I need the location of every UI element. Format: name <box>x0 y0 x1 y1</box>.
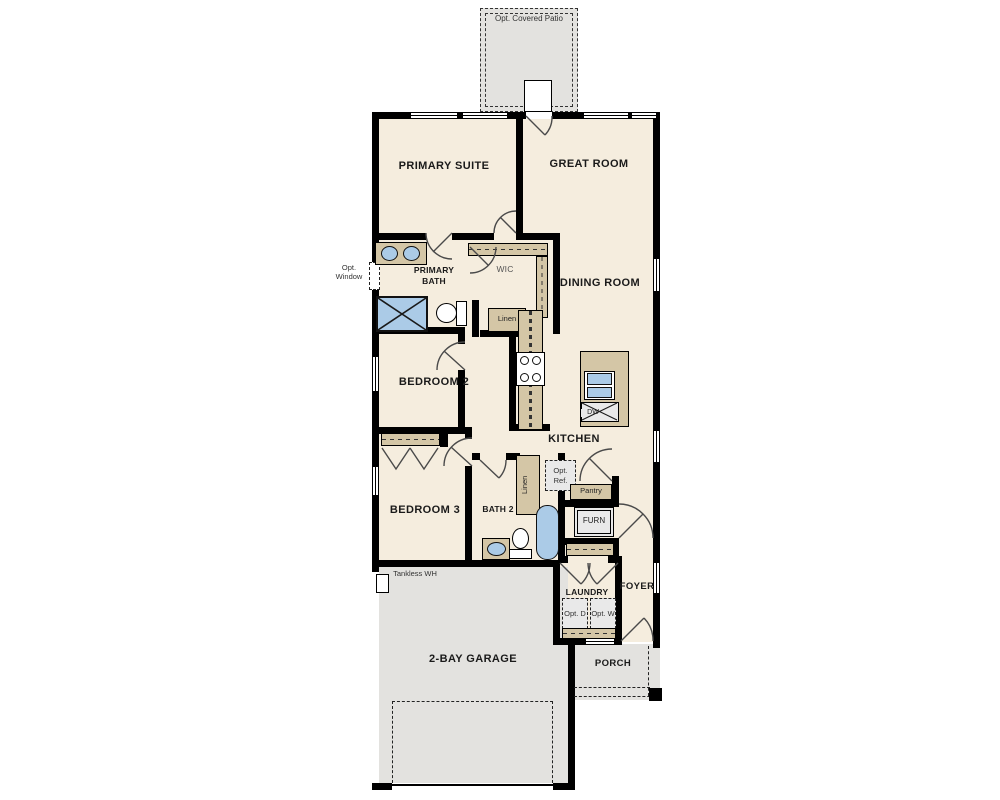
laundry-label: LAUNDRY <box>555 587 619 598</box>
wall-segment <box>509 327 516 431</box>
porch-floor <box>570 644 660 700</box>
closet-shelf <box>536 256 548 318</box>
optional-window <box>369 262 380 290</box>
toilet-tank <box>509 549 532 559</box>
wall-segment <box>458 327 465 344</box>
window <box>653 430 660 463</box>
primary-bath-label: PRIMARY BATH <box>403 265 465 286</box>
patio-label: Opt. Covered Patio <box>492 14 566 24</box>
window <box>583 112 629 119</box>
window <box>631 112 657 119</box>
window <box>410 112 458 119</box>
window <box>585 638 615 645</box>
great-room-label: GREAT ROOM <box>544 158 634 172</box>
closet-shelf <box>381 433 440 446</box>
furnace-label: FURN <box>574 517 614 526</box>
opt-window-label: Opt. Window <box>329 263 369 282</box>
wall-segment <box>452 233 494 240</box>
wic-label: WIC <box>491 264 519 275</box>
porch-pillar <box>649 688 662 701</box>
wall-segment <box>553 560 560 645</box>
kitchen-label: KITCHEN <box>534 433 614 447</box>
wall-segment <box>440 434 448 447</box>
toilet-bowl <box>512 528 529 549</box>
sink <box>381 246 398 261</box>
toilet-tank <box>456 301 467 326</box>
burner <box>532 356 541 365</box>
floor-plan: Linen DW Opt. Ref. Pantry FURN Linen Opt… <box>0 0 1000 800</box>
burner <box>532 373 541 382</box>
laundry-shelf <box>562 628 616 639</box>
wall-segment <box>516 119 523 240</box>
wall-segment <box>379 560 560 567</box>
optional-washer: Opt. W <box>590 598 616 629</box>
wall-segment <box>558 556 568 563</box>
burner <box>520 356 529 365</box>
bath-2-label: BATH 2 <box>481 504 515 515</box>
linen-hall-label: Linen <box>521 460 535 510</box>
shower <box>376 296 428 332</box>
wall-segment <box>615 638 621 645</box>
burner <box>520 373 529 382</box>
sink <box>403 246 420 261</box>
window <box>372 356 379 392</box>
wall-segment <box>615 556 622 645</box>
wall-segment <box>558 638 585 645</box>
window <box>462 112 508 119</box>
bedroom-2-label: BEDROOM 2 <box>388 376 480 390</box>
window <box>653 258 660 292</box>
wall-segment <box>372 112 379 572</box>
bedroom-3-label: BEDROOM 3 <box>379 504 471 518</box>
wall-segment <box>465 427 472 439</box>
pantry-label: Pantry <box>570 487 612 495</box>
porch-dash <box>574 687 650 688</box>
porch-label: PORCH <box>582 658 644 670</box>
window <box>372 466 379 496</box>
sink-basin <box>587 387 612 398</box>
foyer-label: FOYER <box>613 581 661 593</box>
patio-door <box>524 80 552 112</box>
tankless-water-heater <box>376 574 389 593</box>
sink <box>487 542 506 556</box>
wall-segment <box>565 500 619 507</box>
dining-room-label: DINING ROOM <box>558 277 642 291</box>
dishwasher-label: DW <box>581 409 605 417</box>
bathtub <box>536 505 559 560</box>
optional-dryer: Opt. D <box>562 598 588 629</box>
primary-suite-label: PRIMARY SUITE <box>394 160 494 174</box>
wall-segment <box>472 453 480 460</box>
wall-segment <box>379 233 426 240</box>
wall-segment <box>472 300 479 337</box>
garage-label: 2-BAY GARAGE <box>421 653 525 667</box>
garage-door-line <box>392 784 553 786</box>
wall-segment <box>608 556 622 563</box>
tankless-label: Tankless WH <box>389 569 441 578</box>
coat-closet-shelf <box>566 543 614 556</box>
wall-segment <box>372 783 392 790</box>
wall-segment <box>553 783 575 790</box>
closet-shelf <box>468 243 548 256</box>
porch-dash <box>574 696 660 697</box>
wall-segment <box>568 640 575 790</box>
sink-basin <box>587 373 612 385</box>
toilet-bowl <box>436 303 457 323</box>
garage-door-track <box>392 701 553 783</box>
